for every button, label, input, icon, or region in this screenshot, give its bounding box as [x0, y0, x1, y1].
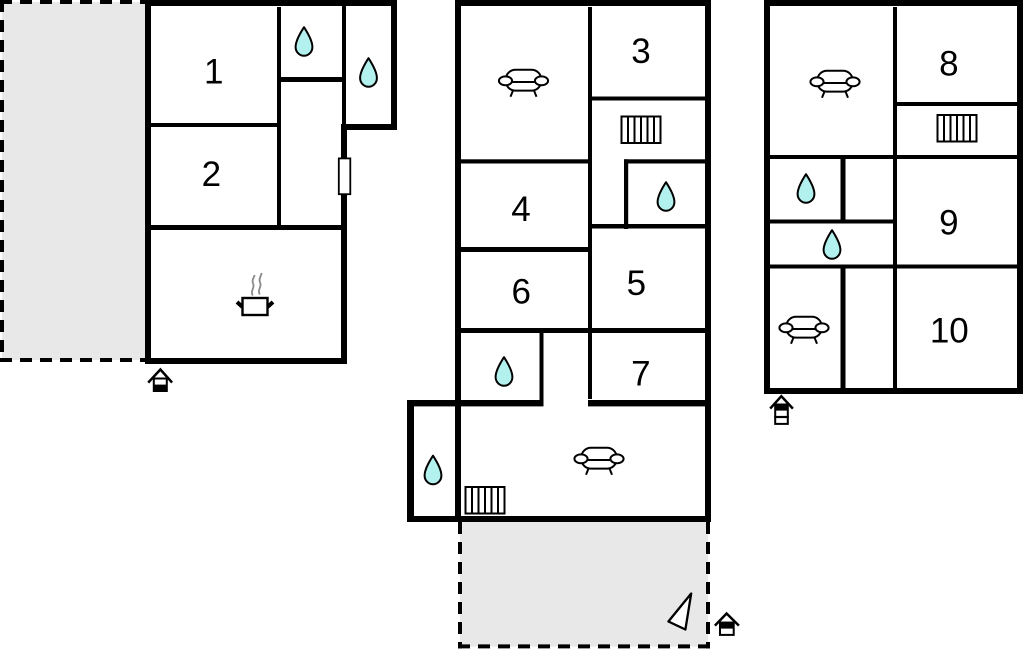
- svg-text:1: 1: [204, 53, 223, 92]
- svg-text:2: 2: [202, 155, 221, 194]
- svg-text:10: 10: [930, 312, 969, 351]
- svg-text:7: 7: [631, 354, 650, 393]
- svg-text:3: 3: [631, 32, 650, 71]
- svg-text:4: 4: [511, 190, 530, 229]
- svg-text:8: 8: [939, 45, 958, 84]
- svg-text:6: 6: [511, 273, 530, 312]
- svg-text:9: 9: [939, 204, 958, 243]
- svg-text:5: 5: [627, 264, 646, 303]
